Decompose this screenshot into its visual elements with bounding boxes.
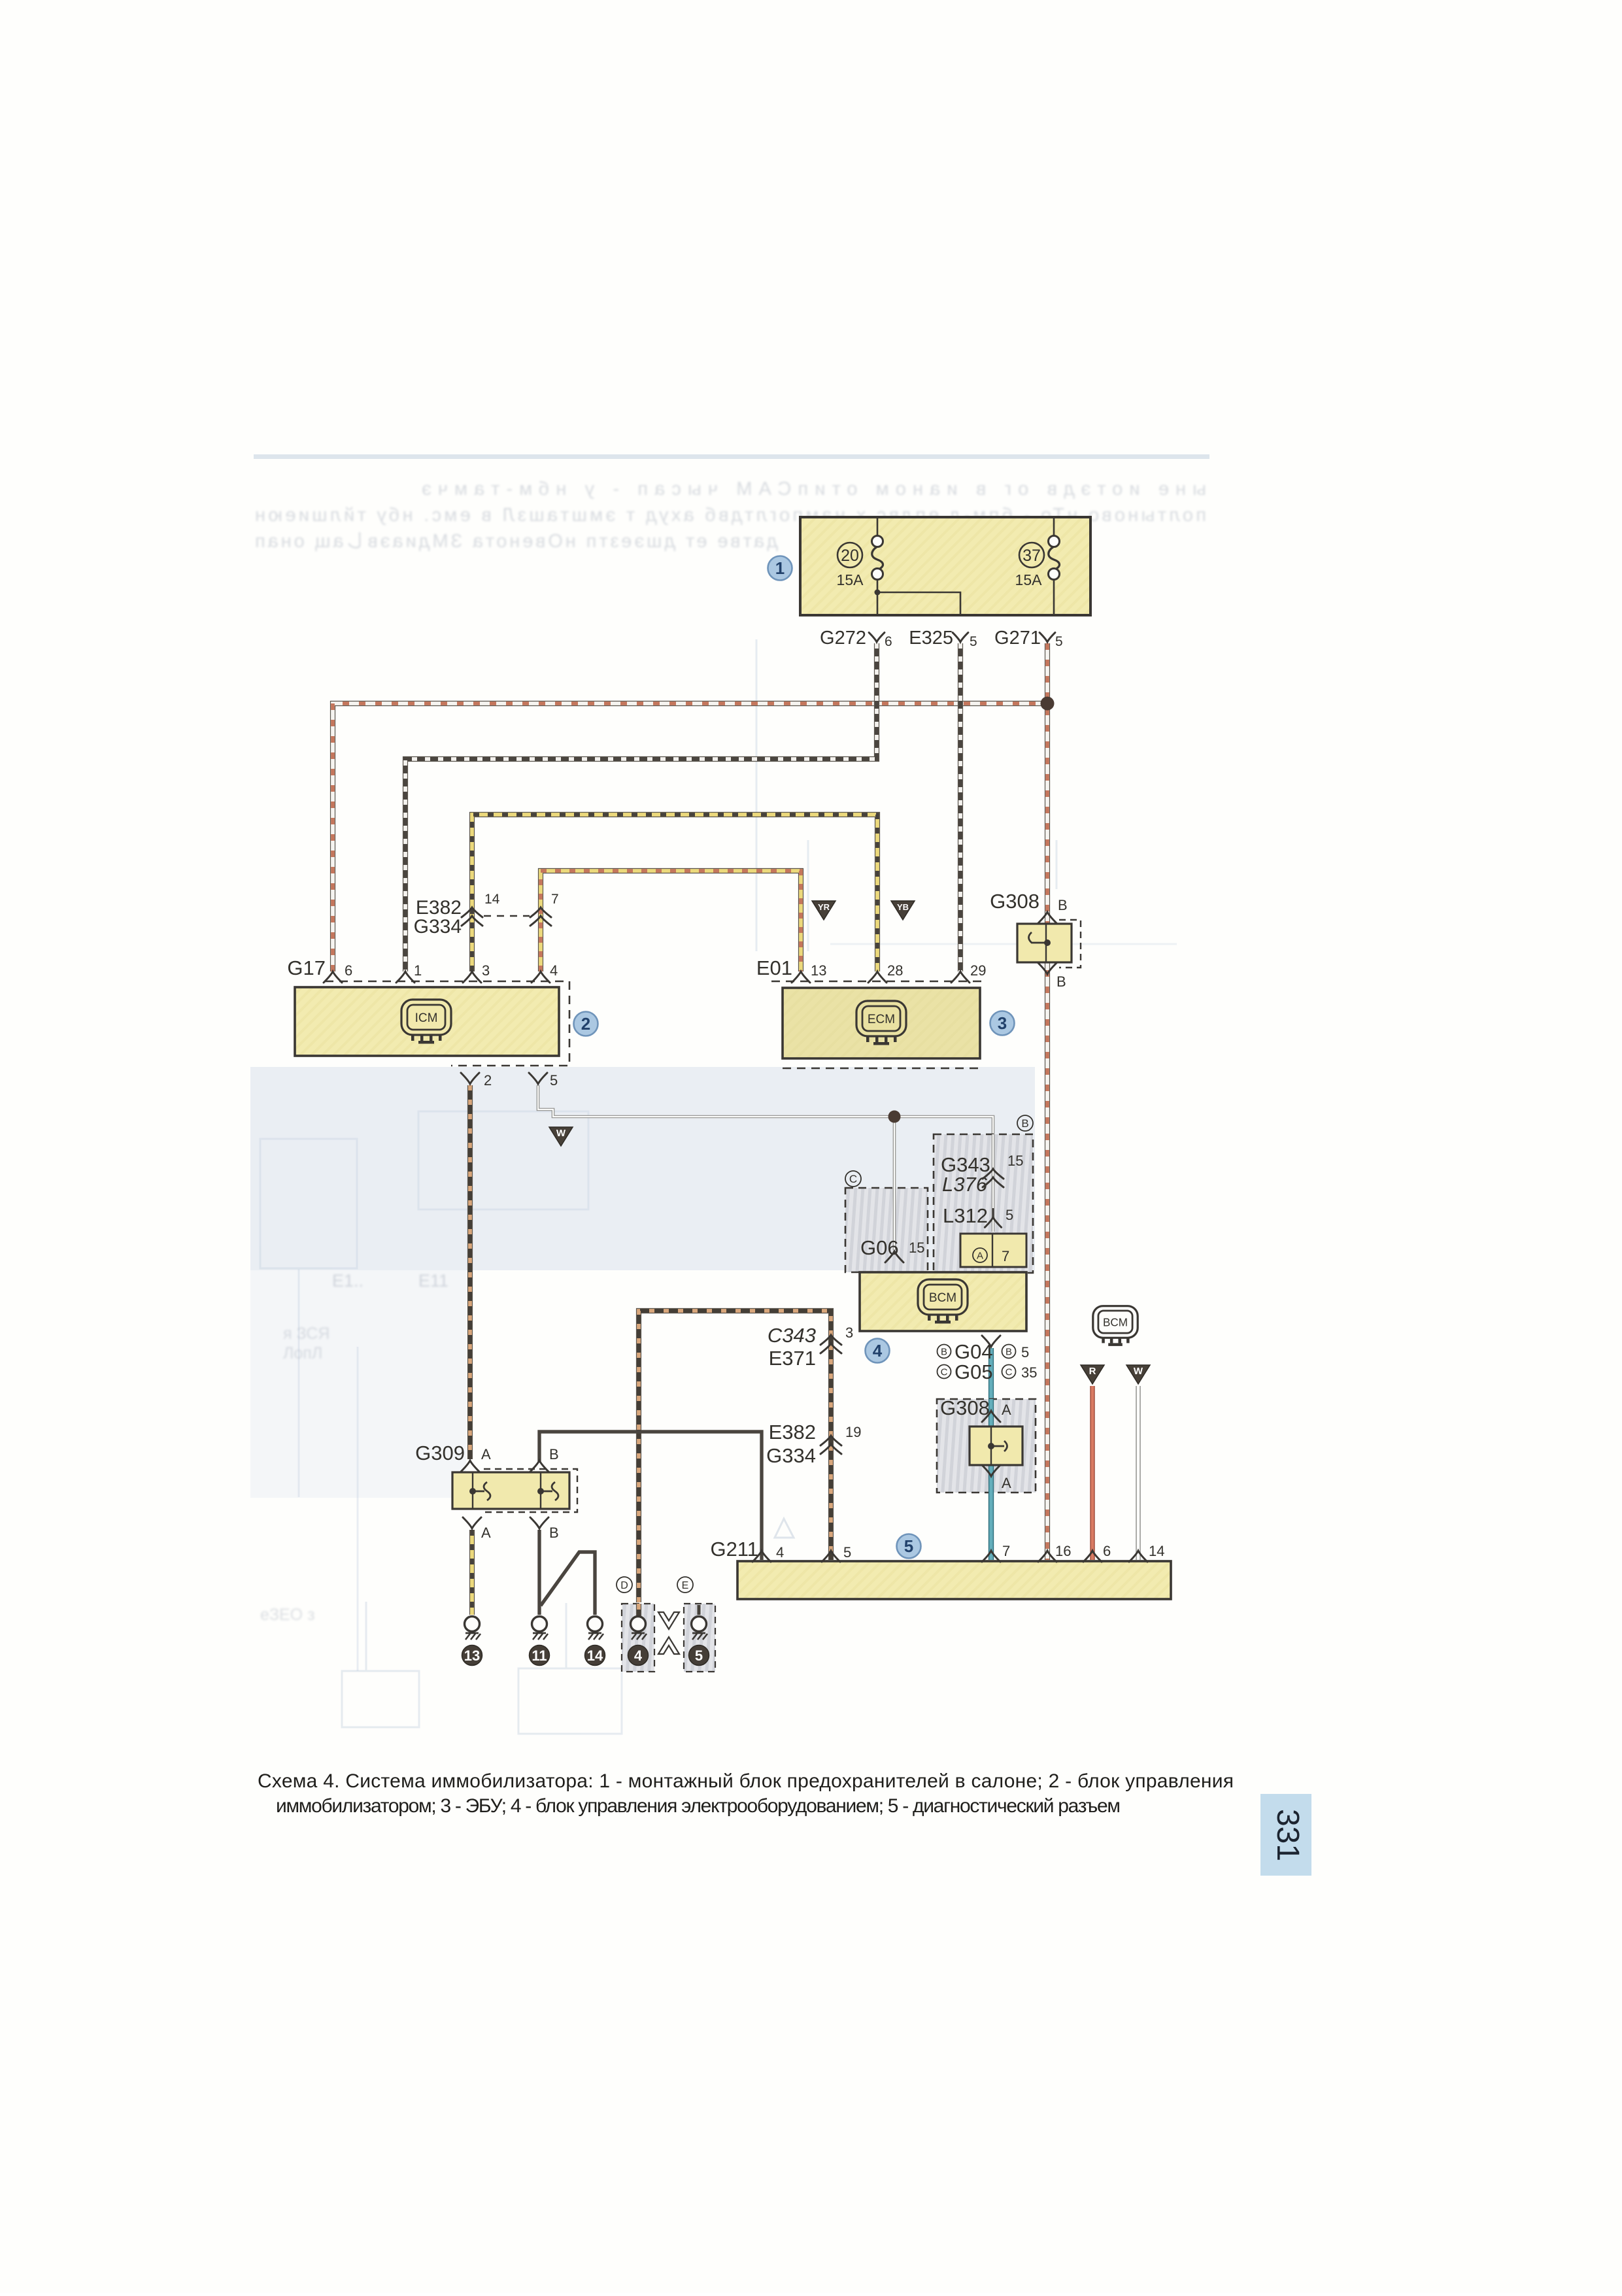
svg-text:G271: G271 <box>994 628 1041 649</box>
svg-text:Схема 4. Система иммобилизатор: Схема 4. Система иммобилизатора: 1 - мон… <box>258 1770 1234 1792</box>
svg-text:Е11: Е11 <box>418 1271 448 1291</box>
svg-text:5: 5 <box>1021 1344 1029 1360</box>
svg-text:B: B <box>549 1446 559 1462</box>
svg-text:11: 11 <box>532 1647 547 1664</box>
svg-text:BCM: BCM <box>1103 1316 1128 1328</box>
svg-text:ЛопЛ: ЛопЛ <box>283 1344 322 1362</box>
svg-text:G334: G334 <box>766 1444 816 1467</box>
svg-text:L376: L376 <box>942 1173 988 1196</box>
svg-text:15: 15 <box>909 1240 924 1256</box>
svg-text:E382: E382 <box>769 1421 816 1443</box>
svg-text:A: A <box>1002 1402 1011 1418</box>
svg-text:3: 3 <box>482 962 490 979</box>
svg-text:5: 5 <box>970 634 977 649</box>
svg-text:6: 6 <box>885 634 892 649</box>
svg-text:B: B <box>1058 897 1068 913</box>
svg-text:G308: G308 <box>940 1396 990 1419</box>
svg-text:5: 5 <box>550 1072 558 1089</box>
svg-text:YR: YR <box>818 902 830 912</box>
svg-text:1: 1 <box>775 558 785 578</box>
svg-text:15A: 15A <box>837 571 864 588</box>
svg-text:35: 35 <box>1021 1364 1037 1381</box>
svg-text:G06: G06 <box>860 1236 899 1259</box>
svg-text:E371: E371 <box>769 1347 816 1370</box>
svg-text:W: W <box>1134 1366 1143 1377</box>
svg-text:5: 5 <box>843 1544 851 1561</box>
svg-text:A: A <box>481 1525 491 1541</box>
svg-text:иммобилизатором; 3 - ЭБУ; 4 -: иммобилизатором; 3 - ЭБУ; 4 - блок управ… <box>276 1795 1121 1817</box>
svg-text:YB: YB <box>897 902 909 912</box>
svg-text:G308: G308 <box>990 890 1039 913</box>
svg-text:7: 7 <box>1002 1248 1009 1264</box>
svg-text:28: 28 <box>887 962 903 979</box>
svg-text:L312: L312 <box>943 1204 988 1227</box>
svg-text:4: 4 <box>873 1341 883 1360</box>
svg-text:4: 4 <box>776 1544 784 1561</box>
svg-text:W: W <box>556 1128 566 1139</box>
svg-text:A: A <box>1002 1475 1011 1491</box>
svg-text:A: A <box>977 1250 983 1261</box>
svg-text:G17: G17 <box>287 956 326 979</box>
svg-text:G05: G05 <box>955 1360 993 1383</box>
svg-text:я ЗСЯ: я ЗСЯ <box>283 1325 329 1343</box>
svg-text:2: 2 <box>581 1014 590 1034</box>
svg-text:1: 1 <box>414 962 422 979</box>
svg-text:Е1..: Е1.. <box>332 1271 363 1291</box>
svg-text:15: 15 <box>1007 1153 1023 1169</box>
svg-text:3: 3 <box>998 1013 1007 1033</box>
svg-text:14: 14 <box>1149 1543 1164 1559</box>
svg-text:G272: G272 <box>820 628 866 649</box>
svg-text:ICM: ICM <box>415 1011 438 1025</box>
svg-text:C343: C343 <box>768 1324 816 1347</box>
svg-text:7: 7 <box>551 892 559 907</box>
svg-text:E01: E01 <box>756 956 792 979</box>
svg-text:13: 13 <box>464 1647 480 1664</box>
svg-text:5: 5 <box>695 1647 703 1664</box>
svg-text:C: C <box>1005 1366 1013 1377</box>
svg-text:G334: G334 <box>414 916 462 937</box>
svg-text:5: 5 <box>904 1536 913 1556</box>
svg-text:3: 3 <box>845 1325 853 1341</box>
svg-text:6: 6 <box>345 962 352 979</box>
svg-text:B: B <box>1021 1117 1028 1130</box>
svg-text:C: C <box>941 1366 948 1377</box>
svg-text:5: 5 <box>1005 1207 1013 1223</box>
svg-text:A: A <box>481 1446 491 1462</box>
svg-text:B: B <box>549 1525 559 1541</box>
svg-text:B: B <box>1056 973 1066 990</box>
svg-text:2: 2 <box>484 1072 492 1089</box>
svg-text:D: D <box>620 1580 628 1591</box>
svg-text:4: 4 <box>634 1647 643 1664</box>
svg-text:G211: G211 <box>710 1538 758 1561</box>
svg-text:E325: E325 <box>909 628 953 649</box>
svg-text:R: R <box>1089 1366 1096 1377</box>
svg-text:15A: 15A <box>1015 571 1043 588</box>
svg-text:E: E <box>682 1580 689 1591</box>
svg-text:331: 331 <box>1270 1809 1305 1861</box>
svg-text:B: B <box>1005 1346 1012 1357</box>
svg-text:13: 13 <box>811 962 826 979</box>
svg-text:37: 37 <box>1022 547 1041 565</box>
svg-text:G04: G04 <box>955 1340 993 1363</box>
svg-text:еЗЕО з: еЗЕО з <box>260 1606 315 1624</box>
svg-text:ECM: ECM <box>868 1013 895 1026</box>
svg-text:19: 19 <box>845 1424 861 1440</box>
svg-text:датве ет дшэезтп нОвенота ЗМд: датве ет дшэезтп нОвенота ЗМдиаэвしащ она… <box>255 531 778 552</box>
svg-text:G309: G309 <box>415 1442 465 1464</box>
svg-text:14: 14 <box>587 1647 603 1664</box>
svg-text:6: 6 <box>1103 1543 1111 1559</box>
svg-text:4: 4 <box>550 962 558 979</box>
svg-text:7: 7 <box>1002 1543 1010 1559</box>
svg-text:16: 16 <box>1055 1543 1071 1559</box>
svg-text:BCM: BCM <box>929 1291 956 1305</box>
svg-text:29: 29 <box>970 962 986 979</box>
svg-text:14: 14 <box>484 892 500 907</box>
svg-text:C: C <box>849 1173 857 1185</box>
svg-text:B: B <box>941 1346 947 1357</box>
svg-text:5: 5 <box>1055 634 1063 649</box>
svg-text:20: 20 <box>841 547 859 565</box>
